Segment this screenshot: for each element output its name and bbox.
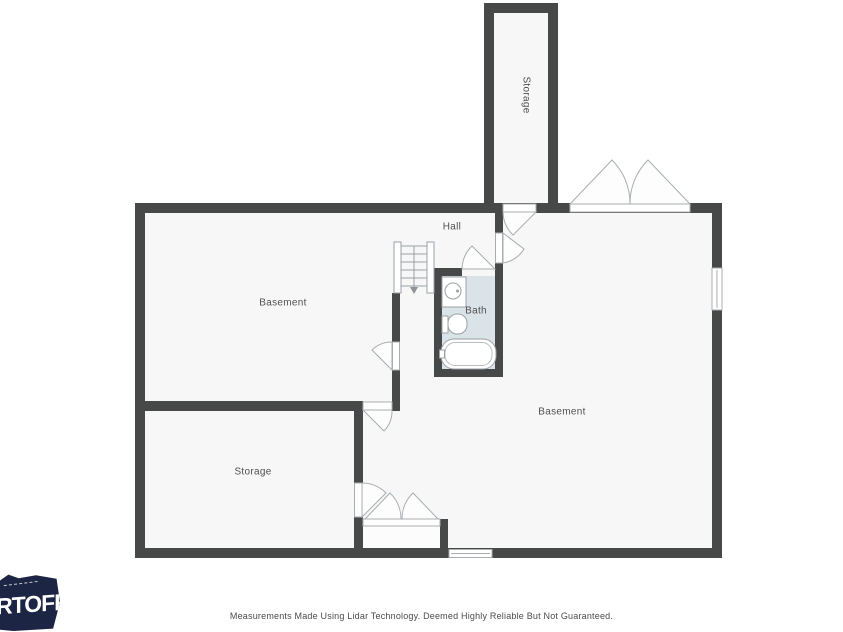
entry-double-door-left-swing <box>570 160 630 204</box>
stairs-left-rail <box>394 242 401 293</box>
room-label-hall: Hall <box>443 222 461 233</box>
floor-plan-page: Basement Basement Storage Storage Hall B… <box>0 0 843 632</box>
corridor-door-panel <box>503 204 536 212</box>
toilet-symbol <box>442 314 467 334</box>
bathtub-symbol <box>440 339 497 369</box>
hall-door-panel <box>496 233 503 263</box>
corridor-wall-top <box>484 3 558 13</box>
storage-top-door-panel <box>363 402 392 410</box>
room-label-bath: Bath <box>465 306 487 317</box>
wall-vestibule-right <box>440 519 448 548</box>
room-label-storage-bottom: Storage <box>234 467 271 478</box>
vestibule-threshold <box>363 519 440 526</box>
wall-bottom <box>135 548 722 558</box>
room-label-basement-left: Basement <box>259 298 306 309</box>
wall-storage-right <box>354 401 363 548</box>
logo-script-flourish <box>4 581 38 591</box>
stairs-right-rail <box>427 242 434 293</box>
entry-double-door-right-swing <box>630 160 690 204</box>
room-label-storage-top: Storage <box>521 76 532 113</box>
stairs-symbol <box>394 242 434 294</box>
corridor-wall-right <box>548 3 558 213</box>
floor-plan-drawing <box>0 0 843 632</box>
wall-divider <box>145 401 363 411</box>
bath-wall-bottom <box>434 369 503 377</box>
window-bottom <box>449 550 492 558</box>
wall-right <box>712 203 722 558</box>
vestibule-floor <box>363 524 440 548</box>
room-label-basement-right: Basement <box>538 407 585 418</box>
corridor-wall-left <box>484 3 494 213</box>
basement-door-panel <box>393 342 400 370</box>
sink-symbol <box>442 277 466 307</box>
disclaimer-text: Measurements Made Using Lidar Technology… <box>0 611 843 621</box>
entry-double-door-threshold <box>570 204 690 212</box>
window-right <box>712 268 722 310</box>
storage-side-door-panel <box>355 483 363 517</box>
wall-left <box>135 203 145 558</box>
bath-wall-left <box>434 268 442 377</box>
company-logo: RTOFF <box>0 571 60 631</box>
